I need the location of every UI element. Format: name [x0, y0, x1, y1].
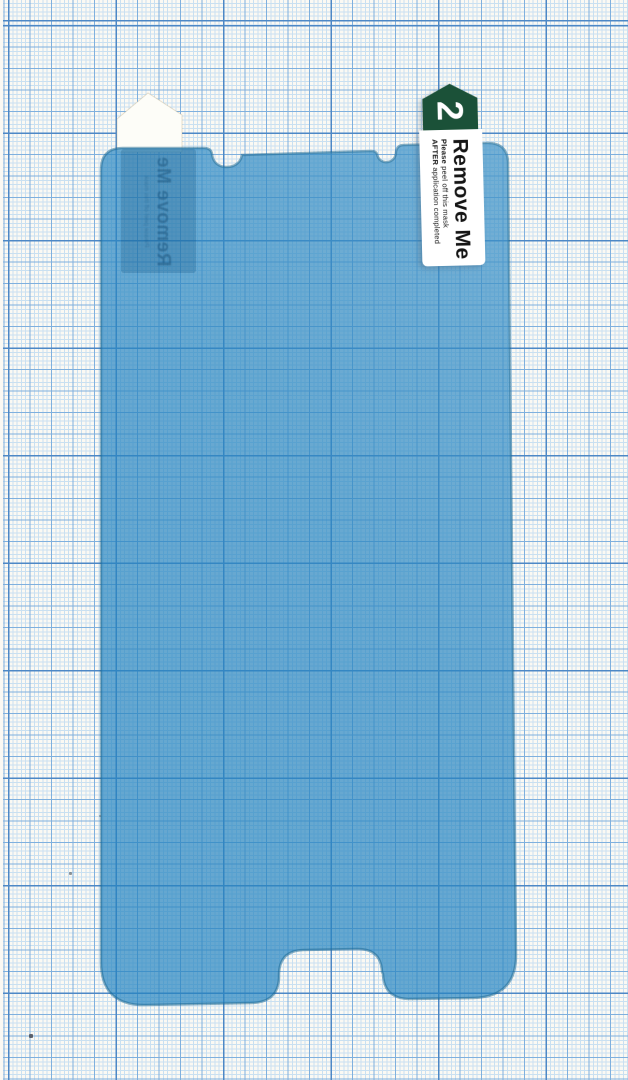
- remove-me-tab: 2 Remove Me Please peel off this mask AF…: [418, 83, 485, 265]
- remove-me-label: Remove Me Please peel off this mask AFTE…: [419, 129, 485, 267]
- note1-lead: Please: [440, 139, 450, 164]
- film-layer: [0, 0, 628, 1080]
- dust-speck: [69, 872, 72, 875]
- step-number: 2: [432, 92, 469, 121]
- note2-rest: application completed: [431, 167, 442, 244]
- note1-rest: peel off this mask: [440, 166, 451, 228]
- note2-lead: AFTER: [430, 139, 440, 165]
- dust-speck: [99, 815, 101, 817]
- dust-speck: [29, 1034, 33, 1038]
- folded-tab-back: [117, 93, 182, 152]
- product-photo-scene: Remove Me Please peel off this mask 2 Re…: [0, 0, 628, 1080]
- remove-me-title: Remove Me: [449, 138, 475, 260]
- step-arrow-icon: 2: [422, 83, 478, 130]
- folded-tab-through-film: [121, 149, 196, 273]
